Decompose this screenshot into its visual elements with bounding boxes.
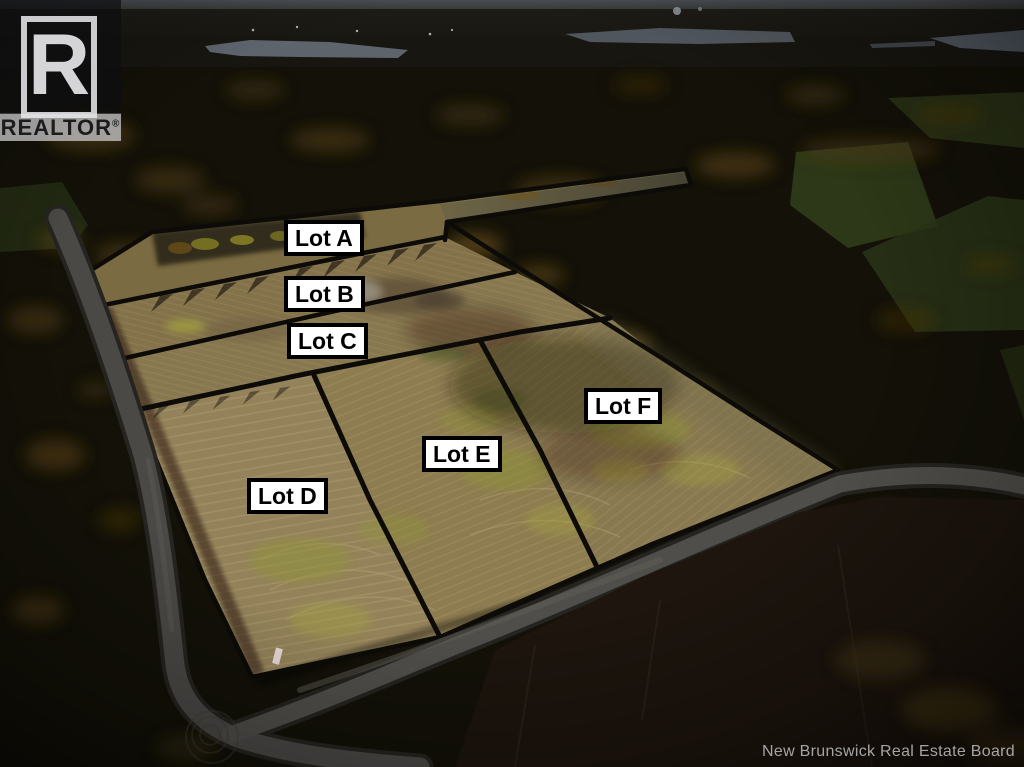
attribution-text: New Brunswick Real Estate Board (762, 743, 1015, 761)
lot-a-label: Lot A (284, 220, 364, 256)
aerial-photo-scene (0, 0, 1024, 767)
lot-d-label: Lot D (247, 478, 328, 514)
realtor-watermark: R REALTOR® (0, 0, 121, 141)
lot-e-label: Lot E (422, 436, 502, 472)
lot-c-label: Lot C (287, 323, 368, 359)
lot-f-label: Lot F (584, 388, 662, 424)
realtor-brand-text: REALTOR (1, 115, 112, 140)
realtor-watermark-panel: R (0, 0, 121, 114)
registered-trademark-symbol: ® (112, 118, 120, 129)
vignette (0, 0, 1024, 767)
aerial-photo: Lot A Lot B Lot C Lot D Lot E Lot F R RE… (0, 0, 1024, 767)
realtor-wordmark-band: REALTOR® (0, 114, 121, 141)
realtor-logo-r-letter: R (28, 22, 90, 108)
lot-b-label: Lot B (284, 276, 365, 312)
realtor-wordmark: REALTOR® (1, 115, 121, 141)
realtor-logo-r-box: R (21, 16, 97, 118)
